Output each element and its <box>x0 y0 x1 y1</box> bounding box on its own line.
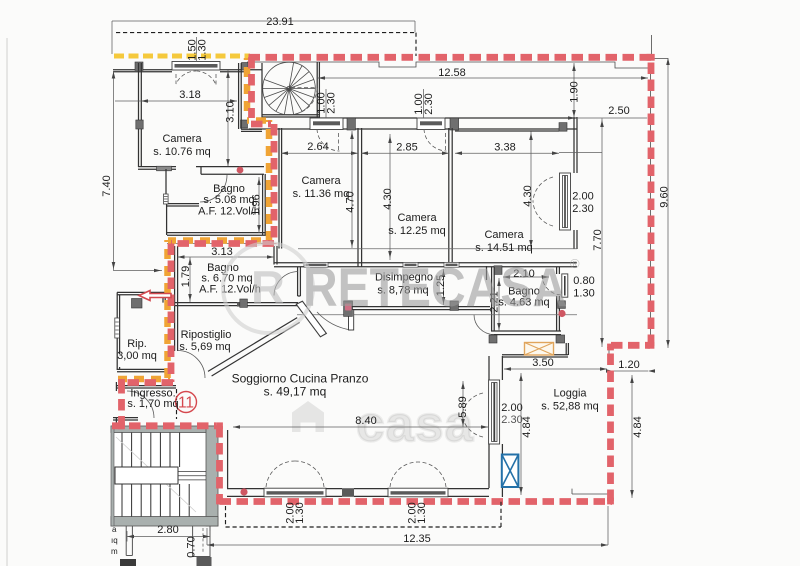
svg-text:23.91: 23.91 <box>266 16 294 28</box>
svg-text:Camera: Camera <box>162 133 202 145</box>
svg-text:2.50: 2.50 <box>608 105 629 117</box>
svg-text:8.40: 8.40 <box>355 415 376 427</box>
svg-text:s. 14.51 mq: s. 14.51 mq <box>475 242 532 254</box>
svg-text:s. 10.76 mq: s. 10.76 mq <box>153 146 210 158</box>
svg-text:2.30: 2.30 <box>423 93 435 114</box>
svg-text:RETECASA: RETECASA <box>303 256 567 318</box>
svg-text:12.35: 12.35 <box>403 533 431 545</box>
svg-text:1.90: 1.90 <box>569 81 581 102</box>
svg-text:0.70: 0.70 <box>186 536 198 557</box>
svg-text:Camera: Camera <box>484 229 524 241</box>
svg-text:m: m <box>111 547 118 556</box>
svg-text:4.84: 4.84 <box>632 416 644 437</box>
svg-text:2.30: 2.30 <box>501 414 522 426</box>
svg-text:2.30: 2.30 <box>572 203 593 215</box>
svg-text:1.30: 1.30 <box>416 502 428 523</box>
svg-text:2.30: 2.30 <box>326 92 338 113</box>
svg-text:4.84: 4.84 <box>521 416 533 437</box>
svg-text:s. 52,88 mq: s. 52,88 mq <box>541 401 598 413</box>
svg-text:7.70: 7.70 <box>592 229 604 250</box>
svg-text:4.30: 4.30 <box>522 185 534 206</box>
svg-text:Soggiorno Cucina Pranzo: Soggiorno Cucina Pranzo <box>232 372 369 386</box>
svg-text:7.40: 7.40 <box>101 175 113 196</box>
svg-text:s. 11.36 mq: s. 11.36 mq <box>293 188 350 200</box>
svg-text:3.10: 3.10 <box>225 101 237 122</box>
svg-text:2.85: 2.85 <box>396 142 417 154</box>
svg-text:1.30: 1.30 <box>573 288 594 300</box>
svg-text:2.64: 2.64 <box>307 141 328 153</box>
svg-text:2.00: 2.00 <box>572 191 593 203</box>
svg-text:Rip.: Rip. <box>127 338 147 350</box>
svg-text:5.89: 5.89 <box>457 396 469 417</box>
svg-text:1.30: 1.30 <box>197 39 209 60</box>
svg-text:1.30: 1.30 <box>294 502 306 523</box>
svg-text:9.60: 9.60 <box>659 186 671 207</box>
svg-text:3.50: 3.50 <box>532 357 553 369</box>
svg-text:3.38: 3.38 <box>494 142 515 154</box>
svg-text:s. 5,69 mq: s. 5,69 mq <box>179 341 230 353</box>
svg-text:1.79: 1.79 <box>180 266 192 287</box>
svg-text:s. 49,17 mq: s. 49,17 mq <box>264 385 327 399</box>
svg-text:1.20: 1.20 <box>618 359 639 371</box>
svg-text:12.58: 12.58 <box>438 67 466 79</box>
svg-text:Ripostiglio: Ripostiglio <box>181 329 232 341</box>
svg-text:Loggia: Loggia <box>553 388 587 400</box>
svg-text:3.13: 3.13 <box>211 246 232 258</box>
svg-text:3.18: 3.18 <box>179 89 200 101</box>
svg-text:A.F. 12.Vol/h: A.F. 12.Vol/h <box>198 206 260 218</box>
svg-text:Camera: Camera <box>301 175 341 187</box>
svg-text:s. 1,70 mq: s. 1,70 mq <box>127 398 178 410</box>
svg-text:s. 12.25 mq: s. 12.25 mq <box>388 225 445 237</box>
svg-text:0.80: 0.80 <box>573 275 594 287</box>
svg-text:a: a <box>112 525 117 534</box>
svg-text:3,00 mq: 3,00 mq <box>117 350 157 362</box>
svg-text:ıq: ıq <box>111 536 118 545</box>
svg-text:4.30: 4.30 <box>382 188 394 209</box>
svg-text:R: R <box>251 261 285 314</box>
svg-text:s. 5.08 mq: s. 5.08 mq <box>203 194 254 206</box>
svg-text:2.80: 2.80 <box>157 524 178 536</box>
svg-text:11: 11 <box>178 395 194 412</box>
svg-text:2.00: 2.00 <box>501 402 522 414</box>
svg-text:®: ® <box>570 256 580 271</box>
svg-text:Camera: Camera <box>397 212 437 224</box>
